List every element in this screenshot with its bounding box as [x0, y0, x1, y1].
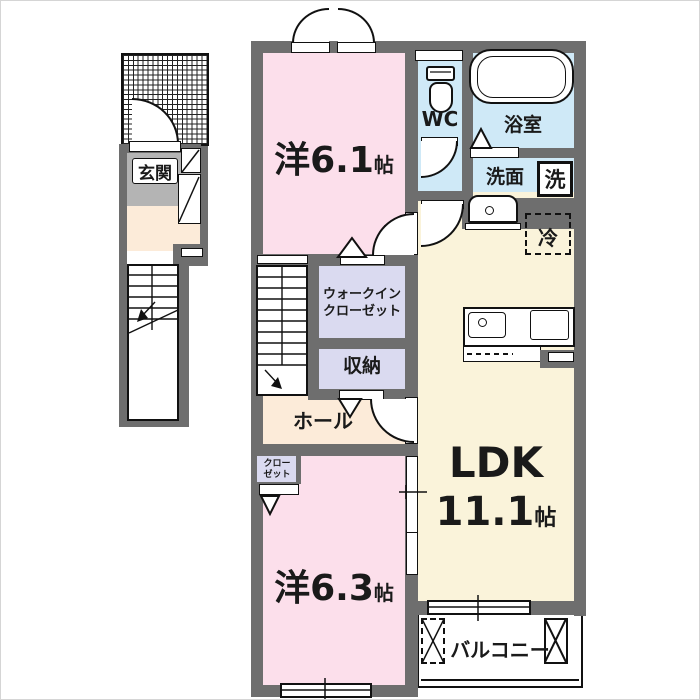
wc-window	[415, 50, 463, 61]
entrance-label: 玄関	[132, 158, 178, 184]
toilet-tank	[426, 66, 455, 81]
hall-bottom-wall	[251, 444, 418, 456]
sliding-door-panel-1	[406, 456, 418, 533]
casement-window-right-base	[337, 42, 376, 53]
bedroom2-unit: 帖	[374, 577, 394, 606]
storage-label: 収納	[319, 352, 405, 376]
balcony-label: バルコニー	[439, 635, 561, 661]
bedroom1-name: 洋6.1	[274, 131, 374, 183]
closet-line1: クロー	[263, 459, 290, 470]
wic-storage-divider-wall	[308, 338, 418, 349]
wic-door-bar	[340, 255, 385, 265]
fridge-label: 冷	[525, 217, 571, 255]
leftblock-right-wall-lower	[179, 264, 189, 427]
entrance-step-bar	[181, 248, 203, 257]
stairs-right-wall	[308, 265, 319, 400]
ldk-size: 11.1	[436, 489, 535, 535]
bedroom2-name: 洋6.3	[274, 559, 374, 611]
ldk-size-label: 11.1帖	[418, 489, 574, 535]
shoe-cabinet-tall	[178, 174, 201, 224]
bedroom2-window	[280, 683, 372, 698]
closet-door-leaf	[259, 484, 299, 495]
kitchen-stove	[530, 310, 569, 340]
bedroom1-label: 洋6.1帖	[263, 131, 405, 181]
bathroom-label: 浴室	[472, 111, 574, 135]
closet-line2: ゼット	[263, 470, 290, 481]
ldk-balcony-window	[427, 600, 531, 615]
casement-window-left-base	[291, 42, 330, 53]
hall-label: ホール	[265, 406, 381, 432]
washer-label: 洗	[537, 161, 573, 197]
washbasin-base	[465, 223, 521, 230]
balcony-inner-rail-line	[421, 679, 579, 681]
unit-right-wall	[574, 41, 586, 616]
staircase-1f	[127, 264, 179, 421]
walkin-closet-line2: クローゼット	[323, 303, 401, 320]
washbasin-drain	[485, 206, 494, 215]
washroom-label: 洗面	[471, 163, 539, 187]
bedroom1-unit: 帖	[374, 149, 394, 178]
kitchen-sink	[468, 312, 506, 338]
closet-label: クロー ゼット	[257, 458, 297, 482]
staircase-2f	[256, 265, 308, 396]
kitchen-faucet	[478, 318, 487, 327]
entry-door-leaf	[129, 141, 181, 152]
bathtub-inner	[477, 56, 566, 98]
leftblock-left-wall	[119, 144, 127, 427]
bedroom2-label: 洋6.3帖	[263, 559, 405, 609]
kitchen-pass-slot	[548, 352, 574, 362]
shoe-cabinet-small	[181, 148, 201, 173]
center-vertical-wall	[405, 52, 418, 685]
wc-label: WC	[418, 107, 462, 131]
floorplan: 玄関	[0, 0, 700, 700]
walkin-closet-label: ウォークイン クローゼット	[319, 284, 405, 322]
casement-window-left-leaf	[292, 8, 329, 43]
walkin-closet-line1: ウォークイン	[323, 286, 401, 303]
ldk-label: LDK	[418, 437, 574, 487]
stairs-top-opening	[257, 255, 308, 264]
bathroom-door-bar	[470, 147, 519, 158]
sliding-door-panel-2	[406, 532, 418, 575]
ldk-unit: 帖	[534, 500, 556, 532]
kitchen-lower-shelf	[463, 346, 541, 362]
casement-window-right-leaf	[338, 8, 375, 43]
